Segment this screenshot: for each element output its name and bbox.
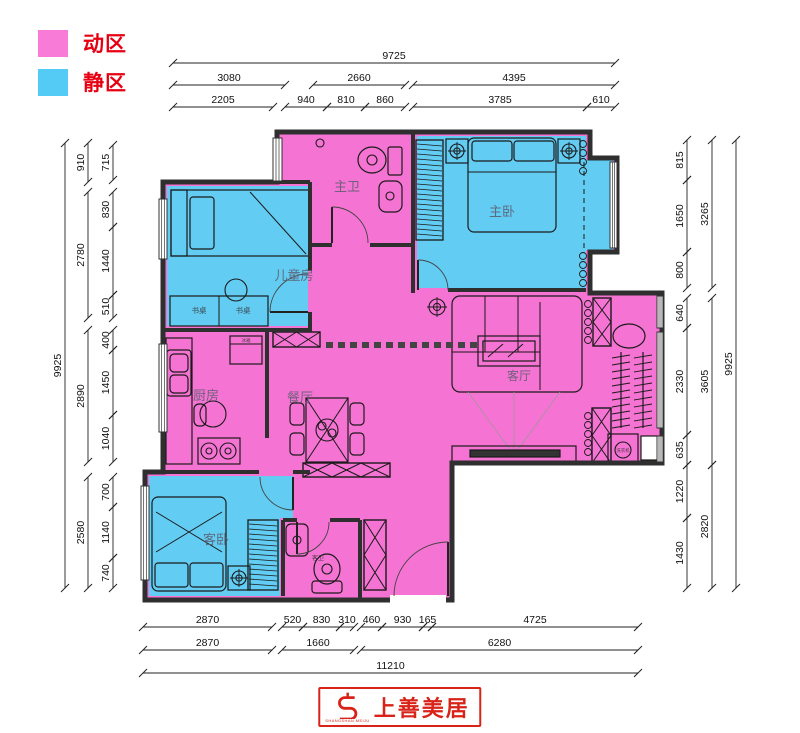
dim-value: 9925 <box>723 352 735 376</box>
dim-value: 6280 <box>488 637 512 649</box>
dim-value: 930 <box>394 614 412 626</box>
dim-value: 830 <box>313 614 331 626</box>
dim-value: 1450 <box>100 371 112 395</box>
active-zone-swatch <box>38 30 68 57</box>
room-label: 书桌 <box>192 305 207 315</box>
brand-icon-wrap: SHANGSHAN MEIJU <box>325 691 369 723</box>
dim-value: 3785 <box>488 94 512 106</box>
dim-value: 310 <box>338 614 356 626</box>
window <box>657 332 663 428</box>
dim-value: 640 <box>674 304 686 322</box>
dim-value: 1650 <box>674 204 686 228</box>
window <box>159 199 167 259</box>
dim-value: 520 <box>284 614 302 626</box>
dim-value: 940 <box>297 94 315 106</box>
dim-value: 2780 <box>75 243 87 267</box>
dim-value: 165 <box>419 614 437 626</box>
window <box>273 138 282 181</box>
zone-legend: 动区 静区 <box>38 28 127 106</box>
dim-value: 460 <box>363 614 381 626</box>
furniture <box>470 450 560 457</box>
dim-value: 1430 <box>674 541 686 565</box>
dim-value: 800 <box>674 261 686 279</box>
dim-value: 860 <box>376 94 394 106</box>
window <box>610 162 617 248</box>
room-label: 餐厅 <box>287 390 313 405</box>
brand-logo: SHANGSHAN MEIJU 上善美居 <box>318 687 481 727</box>
legend-item-active: 动区 <box>38 28 127 58</box>
brand-title: 上善美居 <box>374 691 470 723</box>
dim-value: 2580 <box>75 521 87 545</box>
dim-value: 635 <box>674 441 686 459</box>
room-label: 客厅 <box>507 368 531 383</box>
window <box>657 436 663 462</box>
dim-value: 400 <box>100 331 112 349</box>
dim-value: 715 <box>100 154 112 172</box>
window <box>657 296 663 328</box>
dim-value: 700 <box>100 483 112 501</box>
room-label: 客卧 <box>203 532 229 547</box>
dim-value: 1440 <box>100 249 112 273</box>
dim-value: 2870 <box>196 614 220 626</box>
floorplan-page: 主卫主卧儿童房书桌书桌厨房餐厅客厅客卧客卫洗衣机冰箱97253080266043… <box>0 0 800 733</box>
brand-subtitle: SHANGSHAN MEIJU <box>325 719 369 723</box>
dim-value: 4395 <box>502 72 526 84</box>
window <box>159 344 167 432</box>
dim-value: 740 <box>100 564 112 582</box>
dim-value: 1660 <box>306 637 330 649</box>
dim-value: 910 <box>75 154 87 172</box>
floor-plan: 主卫主卧儿童房书桌书桌厨房餐厅客厅客卧客卫洗衣机冰箱97253080266043… <box>0 0 800 733</box>
room-label: 主卧 <box>489 204 515 219</box>
room-label: 洗衣机 <box>616 447 630 454</box>
dim-value: 3605 <box>699 370 711 394</box>
dim-value: 2660 <box>347 72 371 84</box>
dim-value: 830 <box>100 201 112 219</box>
room-label: 儿童房 <box>274 268 313 283</box>
room-label: 客卫 <box>312 554 324 562</box>
dim-value: 9925 <box>52 354 64 378</box>
dim-value: 11210 <box>376 660 405 672</box>
dim-value: 2820 <box>699 515 711 539</box>
room-label: 书桌 <box>236 305 251 315</box>
dim-value: 815 <box>674 151 686 169</box>
dim-value: 510 <box>100 298 112 316</box>
dim-value: 2205 <box>211 94 235 106</box>
dim-value: 1140 <box>100 521 112 544</box>
dim-value: 3080 <box>217 72 241 84</box>
room-label: 冰箱 <box>242 337 251 344</box>
dim-value: 3265 <box>699 202 711 226</box>
quiet-zone-label: 静区 <box>83 67 127 97</box>
active-zone-label: 动区 <box>83 28 127 58</box>
room-label: 主卫 <box>334 179 360 194</box>
dim-value: 2870 <box>196 637 220 649</box>
dim-value: 2890 <box>75 384 87 408</box>
quiet-zone-swatch <box>38 69 68 96</box>
furniture <box>390 595 446 605</box>
dim-value: 1220 <box>674 480 686 504</box>
dim-value: 4725 <box>523 614 547 626</box>
window <box>141 486 149 580</box>
brand-s-icon <box>332 691 362 719</box>
room-label: 厨房 <box>193 388 219 403</box>
dim-value: 810 <box>337 94 355 106</box>
dim-value: 1040 <box>100 427 112 451</box>
dim-value: 610 <box>592 94 610 106</box>
dim-value: 2330 <box>674 370 686 394</box>
legend-item-quiet: 静区 <box>38 67 127 97</box>
dim-value: 9725 <box>382 50 406 62</box>
